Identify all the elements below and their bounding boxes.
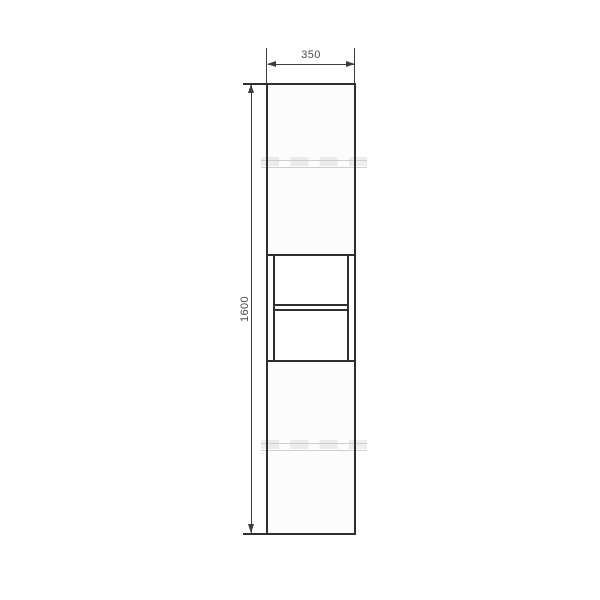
technical-drawing-canvas: 350 1600 xyxy=(0,0,600,600)
width-dimension-line xyxy=(268,64,354,65)
open-section-right-wall xyxy=(347,256,349,360)
width-dimension-label: 350 xyxy=(266,49,356,62)
open-section-top-divider xyxy=(266,254,356,256)
height-arrow-up-icon xyxy=(248,84,254,93)
height-dimension-label: 1600 xyxy=(239,289,253,329)
bottom-edge-extension-line xyxy=(243,533,266,535)
open-section-bottom-divider xyxy=(266,360,356,362)
height-arrow-down-icon xyxy=(248,524,254,533)
top-edge-extension-line xyxy=(243,83,266,85)
middle-shelf xyxy=(275,304,347,311)
